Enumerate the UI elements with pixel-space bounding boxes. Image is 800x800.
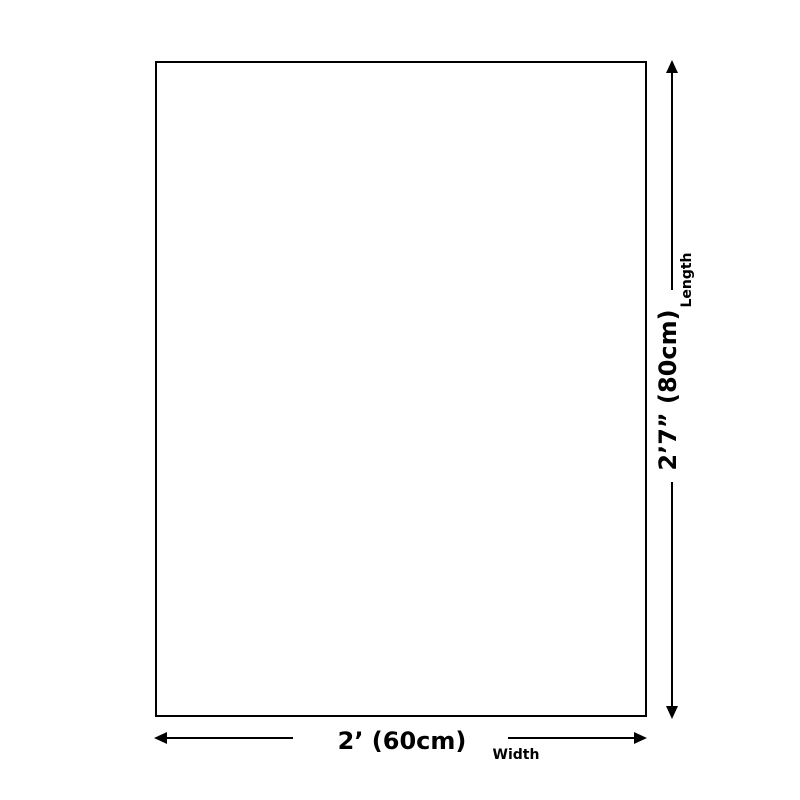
length-value: 2’7” (80cm) (656, 309, 680, 470)
arrow-up-icon (666, 60, 678, 73)
dimension-diagram: Length 2’7” (80cm) 2’ (60cm) Width (0, 0, 800, 800)
arrow-down-icon (666, 706, 678, 719)
product-outline-rectangle (155, 61, 647, 717)
length-label: Length (680, 252, 694, 307)
width-arrow-line-left (167, 737, 293, 739)
length-arrow-line-top (671, 73, 673, 290)
arrow-left-icon (154, 732, 167, 744)
arrow-right-icon (634, 732, 647, 744)
width-value: 2’ (60cm) (338, 729, 467, 753)
length-arrow-line-bottom (671, 482, 673, 706)
width-label: Width (493, 748, 540, 762)
width-arrow-line-right (508, 737, 634, 739)
